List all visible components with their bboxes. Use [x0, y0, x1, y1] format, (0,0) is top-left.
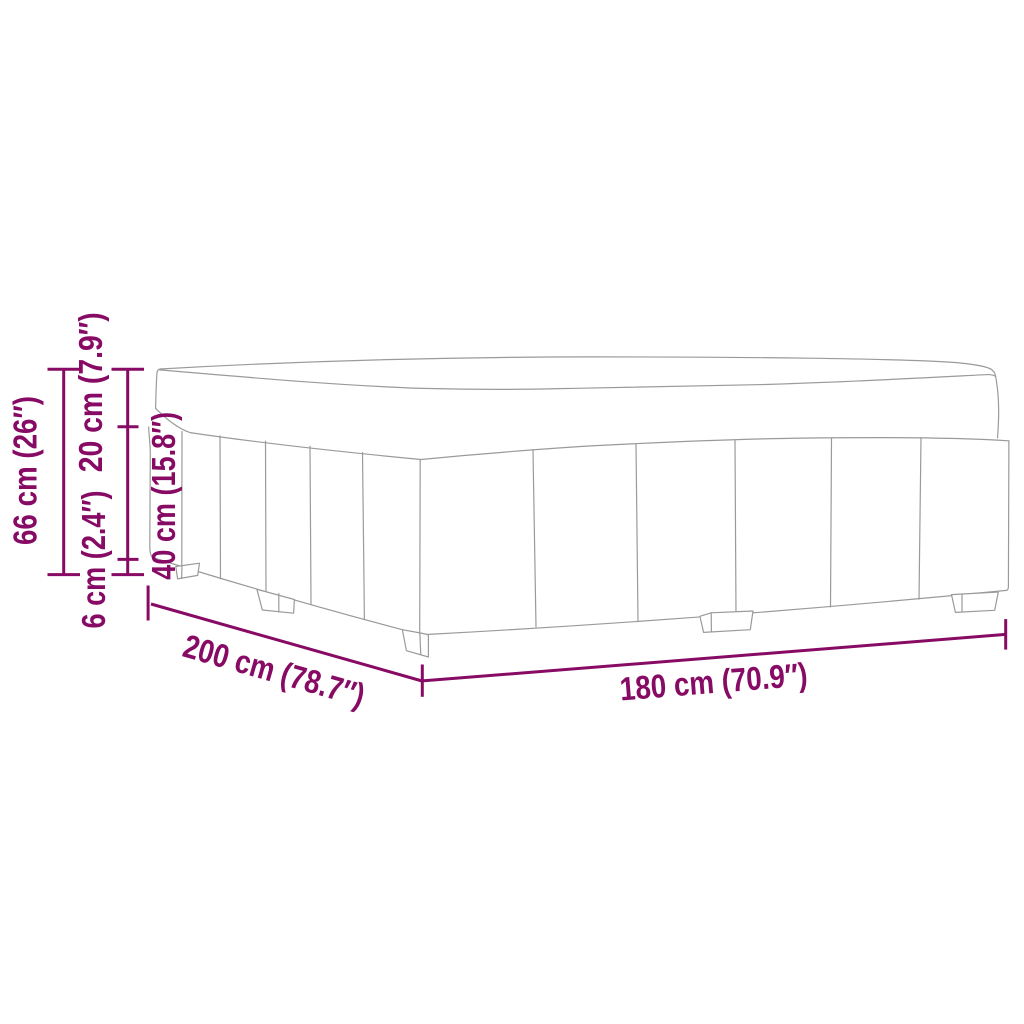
- svg-text:20 cm (7.9″): 20 cm (7.9″): [72, 312, 109, 472]
- svg-text:6 cm (2.4″): 6 cm (2.4″): [75, 491, 112, 629]
- svg-text:40 cm (15.8″): 40 cm (15.8″): [145, 412, 182, 580]
- svg-text:66 cm (26″): 66 cm (26″): [7, 396, 44, 545]
